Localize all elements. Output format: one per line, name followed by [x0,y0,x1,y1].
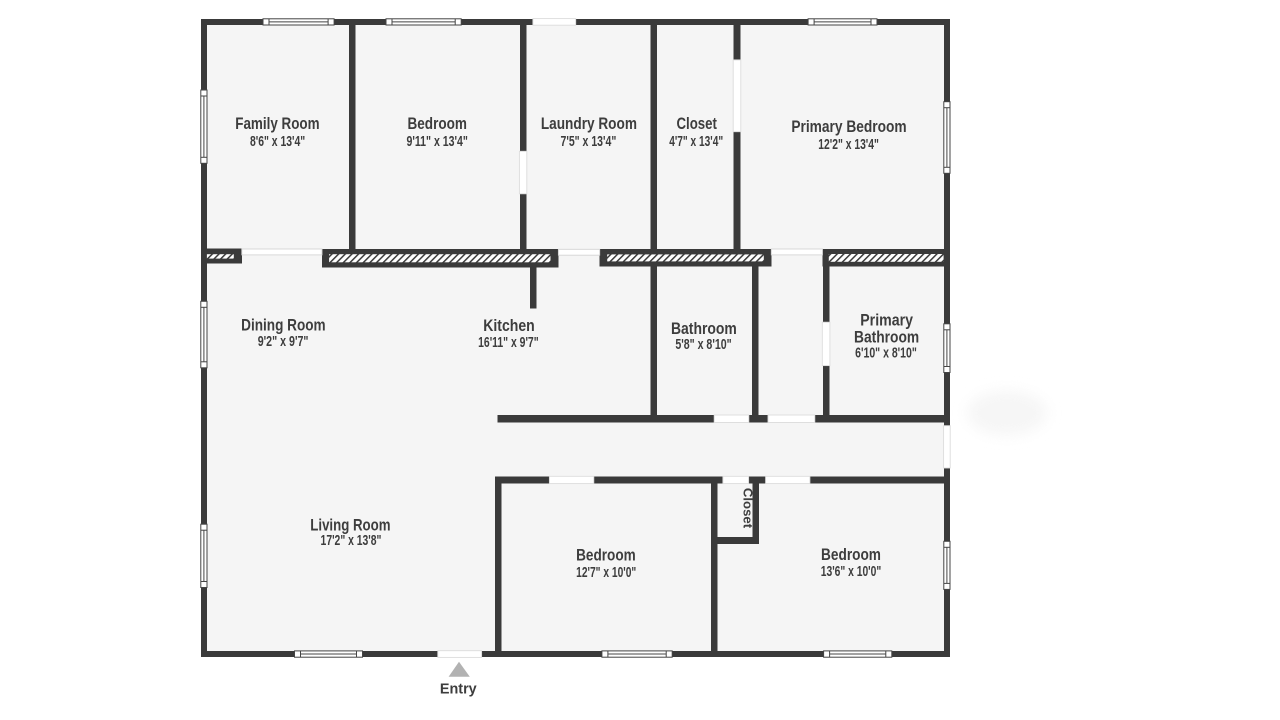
svg-text:Bathroom: Bathroom [671,320,737,338]
svg-text:Bedroom: Bedroom [408,115,467,133]
svg-text:Dining Room: Dining Room [241,316,326,334]
svg-text:9'11" x 13'4": 9'11" x 13'4" [407,134,468,150]
svg-text:8'6" x 13'4": 8'6" x 13'4" [250,134,305,150]
svg-text:Closet: Closet [741,488,755,529]
svg-text:6'10" x 8'10": 6'10" x 8'10" [855,346,917,362]
svg-text:Closet: Closet [677,115,718,133]
svg-text:Bedroom: Bedroom [821,546,881,564]
svg-text:13'6" x 10'0": 13'6" x 10'0" [821,564,882,580]
svg-text:16'11" x 9'7": 16'11" x 9'7" [478,335,539,351]
svg-text:Kitchen: Kitchen [483,317,535,335]
svg-text:Primary Bedroom: Primary Bedroom [791,118,906,136]
svg-text:9'2" x 9'7": 9'2" x 9'7" [258,334,309,350]
svg-text:Laundry Room: Laundry Room [541,115,637,133]
svg-text:12'7" x 10'0": 12'7" x 10'0" [576,565,636,581]
svg-text:Living Room: Living Room [310,517,390,535]
svg-text:12'2" x 13'4": 12'2" x 13'4" [818,137,879,153]
svg-text:Family Room: Family Room [235,115,319,133]
svg-text:7'5" x 13'4": 7'5" x 13'4" [561,134,617,150]
svg-text:17'2" x 13'8": 17'2" x 13'8" [321,533,382,549]
svg-text:Bathroom: Bathroom [854,329,919,347]
svg-text:5'8" x 8'10": 5'8" x 8'10" [675,337,731,353]
svg-text:4'7" x 13'4": 4'7" x 13'4" [669,134,723,150]
svg-text:Bedroom: Bedroom [576,547,636,565]
svg-text:Entry: Entry [440,680,477,697]
svg-text:Primary: Primary [860,312,913,330]
